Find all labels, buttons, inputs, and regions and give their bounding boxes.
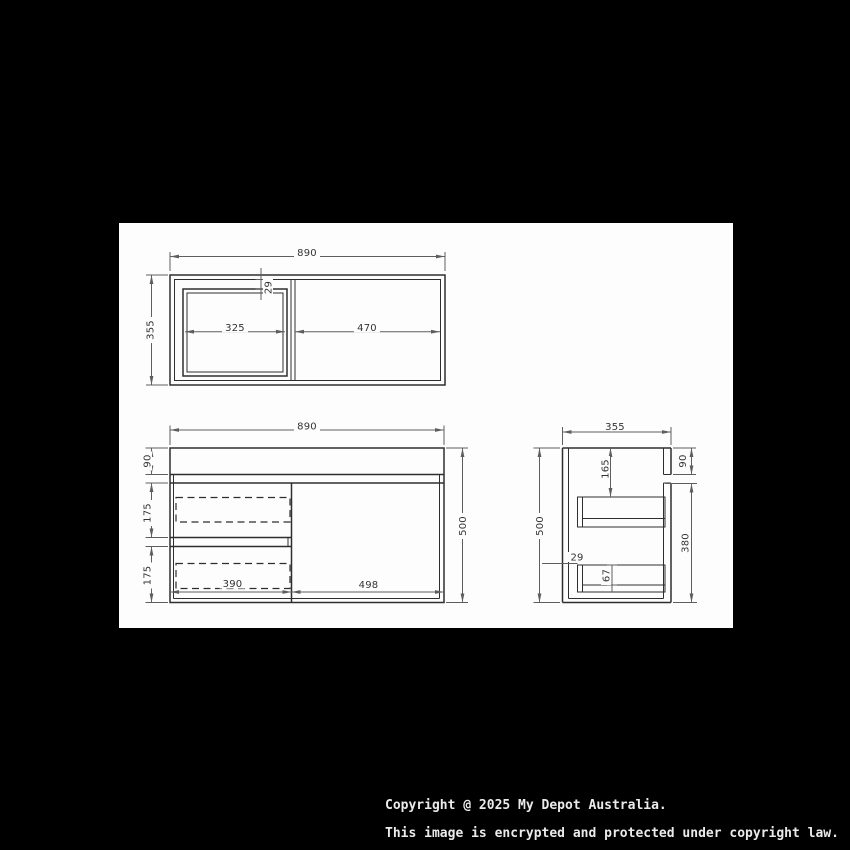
side-view-drawer1-profile bbox=[578, 497, 666, 527]
front-view-dim-width: 890 bbox=[170, 421, 444, 445]
dim-label-front-benchtop: 90 bbox=[143, 454, 154, 467]
page: { "page": { "background": "#000000", "pa… bbox=[0, 0, 850, 850]
dim-label-side-height: 500 bbox=[535, 516, 546, 536]
dim-label-side-depth: 355 bbox=[605, 422, 625, 433]
dim-label-front-right-width: 498 bbox=[359, 580, 379, 591]
top-view-dim-right-width: 470 bbox=[295, 322, 440, 334]
front-view-dim-benchtop: 90 bbox=[142, 448, 154, 475]
side-view-dim-top-offset: 165 bbox=[600, 448, 612, 497]
dim-label-top-setback: 29 bbox=[264, 281, 275, 294]
dim-label-front-drawer1: 175 bbox=[143, 503, 154, 523]
dim-label-front-width: 890 bbox=[297, 421, 317, 432]
dim-label-top-depth: 355 bbox=[146, 320, 157, 340]
side-view-dim-height: 500 bbox=[534, 448, 561, 603]
front-view: 890 90 175 175 390 bbox=[142, 421, 469, 603]
side-view-dim-body-height: 380 bbox=[665, 484, 697, 603]
top-view-dim-setback: 29 bbox=[256, 268, 275, 300]
front-view-dim-bottom-widths: 390 498 bbox=[170, 579, 444, 593]
side-view-drawer2-profile bbox=[578, 565, 666, 592]
side-view-dim-setback: 29 bbox=[542, 552, 587, 564]
dim-label-side-setback: 29 bbox=[570, 553, 583, 564]
top-view-dim-left-width: 325 bbox=[185, 322, 285, 334]
top-view-dim-depth: 355 bbox=[145, 275, 168, 385]
vanity-technical-drawing: 890 355 325 470 29 bbox=[119, 223, 733, 628]
top-view-dim-width: 890 bbox=[170, 248, 445, 272]
side-view-dim-drawer-depth: 67 bbox=[601, 565, 617, 592]
protection-line: This image is encrypted and protected un… bbox=[385, 826, 839, 841]
side-view-dim-benchtop: 90 bbox=[673, 448, 696, 475]
copyright-line: Copyright @ 2025 My Depot Australia. bbox=[385, 798, 667, 813]
dim-label-side-drawer-depth: 67 bbox=[602, 569, 613, 582]
front-view-dim-drawer2: 175 bbox=[142, 547, 154, 603]
dim-label-top-width: 890 bbox=[297, 248, 317, 259]
side-view: 355 500 165 29 67 bbox=[534, 422, 698, 603]
top-view: 890 355 325 470 29 bbox=[145, 248, 445, 386]
dim-label-front-drawer2: 175 bbox=[143, 566, 154, 586]
front-view-dim-drawer1: 175 bbox=[142, 483, 154, 538]
side-view-dim-depth: 355 bbox=[563, 422, 672, 446]
drawing-canvas: 890 355 325 470 29 bbox=[119, 223, 733, 628]
dim-label-side-body-height: 380 bbox=[681, 533, 692, 553]
dim-label-front-left-width: 390 bbox=[223, 579, 243, 590]
dim-label-side-benchtop: 90 bbox=[678, 454, 689, 467]
front-view-dim-height: 500 bbox=[446, 448, 469, 603]
dim-label-top-left-width: 325 bbox=[225, 323, 245, 334]
front-view-drawer1-recess bbox=[176, 498, 290, 523]
dim-label-side-top-offset: 165 bbox=[601, 459, 612, 479]
dim-label-top-right-width: 470 bbox=[357, 323, 377, 334]
dim-label-front-height: 500 bbox=[458, 516, 469, 536]
